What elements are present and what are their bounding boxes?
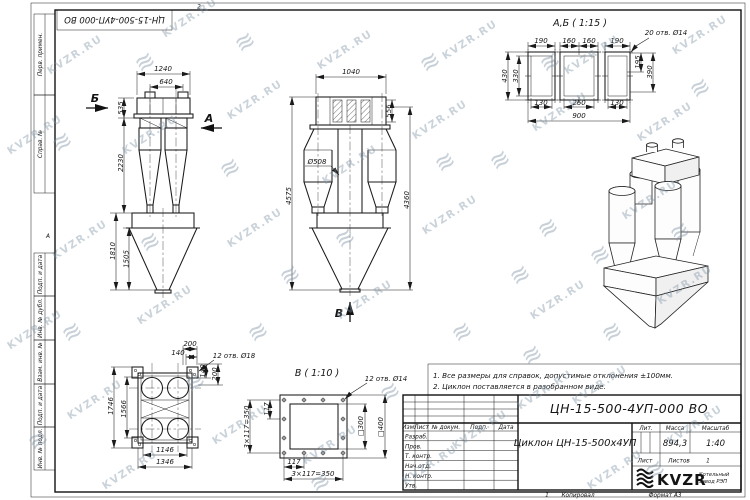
stamp-rotated-designation: ЦН-15-500-4УП-000 ВО — [64, 14, 165, 24]
section-v-view: В ( 1:10 ) 12 отв. Ø14 117 3×117=350 □30… — [243, 368, 407, 481]
plan-view: 200 140 12 отв. Ø18 140 200 1746 1566 11… — [107, 340, 256, 469]
dim-1346: 1346 — [156, 458, 174, 466]
dim-900: 900 — [572, 112, 586, 120]
sheet-label: Лист — [637, 459, 653, 465]
dim-4575: 4575 — [285, 187, 293, 205]
drawing-canvas: ЦН-15-500-4УП-000 ВО Перв. примен. Справ… — [0, 0, 750, 500]
scale-value: 1:40 — [706, 439, 725, 449]
note-line: 1. Все размеры для справок, допустимые о… — [433, 371, 673, 380]
dim-117: 117 — [263, 402, 271, 416]
zone-letter-left: А — [45, 234, 50, 240]
dim-1240: 1240 — [154, 65, 172, 73]
title-block: ЦН-15-500-4УП-000 ВО Циклон ЦН-15-500х4У… — [402, 395, 741, 499]
hole-callout-20xd14: 20 отв. Ø14 — [645, 29, 688, 37]
side-view: 1040 556 4575 4360 Ø508 В — [285, 68, 413, 322]
dim-sq-300: □300 — [357, 415, 365, 436]
dim-1040: 1040 — [342, 68, 360, 76]
dim-dia-508: Ø508 — [307, 158, 327, 166]
iso-view — [604, 139, 708, 328]
dim-160: 160 — [562, 37, 576, 45]
dim-160: 160 — [582, 37, 596, 45]
lit-label: Лит. — [638, 426, 653, 432]
doc-number: ЦН-15-500-4УП-000 ВО — [550, 401, 708, 416]
dim-117: 117 — [287, 458, 301, 466]
col-header: Дата — [497, 425, 513, 431]
dim-1146: 1146 — [156, 446, 174, 454]
dim-1566: 1566 — [120, 400, 128, 418]
drawing-sheet: ЦН-15-500-4УП-000 ВО Перв. примен. Справ… — [0, 0, 750, 500]
dim-200: 200 — [183, 340, 197, 348]
sign-row-label: Пров. — [405, 444, 422, 450]
margin-label: Подп. и дата — [38, 254, 44, 294]
footer-format-label: Формат А3 — [648, 493, 681, 499]
dim-330: 330 — [512, 69, 520, 83]
margin-label: Перв. примен. — [38, 33, 44, 77]
margin-label: Справ. № — [38, 130, 44, 158]
scale-label: Масштаб — [702, 426, 730, 432]
dim-1810: 1810 — [109, 242, 117, 260]
view-arrow-label-a: А — [204, 112, 214, 125]
sheets-label: Листов — [667, 459, 690, 465]
dim-556: 556 — [385, 104, 393, 118]
dim-pitch-left: 3×117=350 — [243, 405, 251, 448]
dim-130: 130 — [534, 99, 548, 107]
hole-callout-12xd18: 12 отв. Ø18 — [213, 352, 256, 360]
view-arrow-label-v: В — [335, 307, 343, 320]
dim-4360: 4360 — [403, 191, 411, 209]
dim-190: 190 — [534, 37, 548, 45]
footer-copy-label: Копировал — [561, 493, 594, 499]
mass-value: 894,3 — [663, 439, 687, 449]
col-header: Лист — [413, 425, 429, 431]
margin-label: Инв. № дубл. — [38, 298, 44, 338]
dim-2230: 2230 — [117, 154, 125, 172]
dim-1505: 1505 — [123, 250, 131, 268]
dim-200: 200 — [211, 367, 219, 381]
logo-subtext: Котельный — [699, 472, 730, 478]
dim-140: 140 — [171, 349, 185, 357]
hole-callout-12xd14: 12 отв. Ø14 — [365, 375, 408, 383]
kvzr-logo-icon — [637, 470, 653, 488]
dim-260: 260 — [572, 99, 586, 107]
margin-label: Подп. и дата — [38, 385, 44, 425]
dim-1746: 1746 — [107, 397, 115, 415]
sign-row-label: Н. контр. — [405, 474, 433, 480]
sign-row-label: Утв. — [405, 484, 417, 490]
section-v-title: В ( 1:10 ) — [295, 368, 339, 379]
col-header: Подп. — [470, 425, 488, 431]
margin-label: Инв. № подл. — [38, 428, 44, 468]
col-header: № докум. — [431, 425, 461, 431]
view-arrow-label-b: Б — [91, 92, 99, 105]
dim-130: 130 — [610, 99, 624, 107]
zone-number-top: 2 — [197, 5, 201, 11]
dim-535: 535 — [117, 101, 125, 115]
mass-label: Масса — [666, 426, 685, 432]
dim-pitch-bottom: 3×117=350 — [292, 470, 335, 478]
section-ab-view: А,Б ( 1:15 ) 190 160 160 190 20 отв. Ø14… — [501, 18, 687, 123]
front-view: 1240 640 535 2230 1810 1505 Б А — [86, 65, 222, 298]
sign-row-label: Т. контр. — [405, 454, 432, 460]
dim-140: 140 — [199, 364, 207, 378]
section-ab-title: А,Б ( 1:15 ) — [552, 18, 607, 29]
margin-label: Взам. инв. № — [38, 342, 44, 381]
dim-195: 195 — [634, 55, 642, 69]
dim-190: 190 — [610, 37, 624, 45]
zone-number-bottom: 1 — [545, 493, 549, 499]
sign-row-label: Разраб. — [405, 435, 428, 441]
sheets-value: 1 — [706, 459, 710, 465]
dim-390: 390 — [646, 65, 654, 79]
note-line: 2. Циклон поставляется в разобранном вид… — [433, 382, 606, 391]
dim-430: 430 — [501, 69, 509, 83]
logo-subtext: завод РЭП — [699, 479, 727, 485]
dim-sq-400: □400 — [377, 416, 385, 437]
notes-block: 1. Все размеры для справок, допустимые о… — [428, 364, 741, 395]
sign-row-label: Нач.отд. — [405, 464, 431, 470]
product-name: Циклон ЦН-15-500х4УП — [514, 438, 637, 449]
dim-640: 640 — [159, 78, 173, 86]
